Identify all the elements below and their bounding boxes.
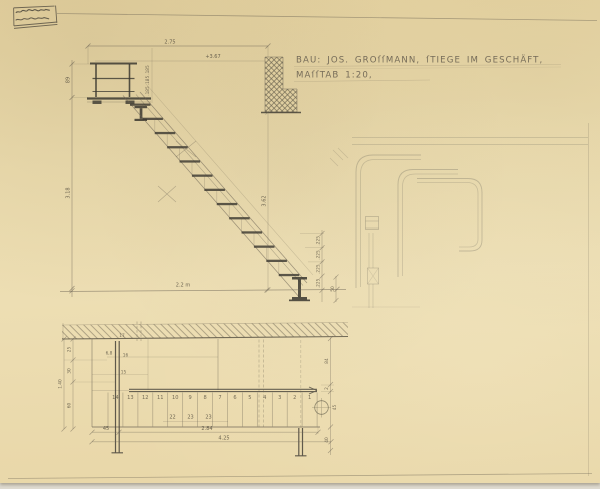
handrail-return-inner-line (417, 183, 478, 248)
dim-right: 2 (324, 387, 330, 390)
tread-width: 22 (169, 415, 175, 421)
riser-dim: .225 (316, 236, 322, 246)
dim-bottom-total: 4.25 (218, 436, 229, 442)
plan-tread-width-dims: 22 23 23 (163, 415, 228, 422)
dim-top-label: 2.75 (164, 40, 175, 46)
dim-left-outer: 1.40 (58, 379, 64, 389)
tread-number: 3 (278, 395, 281, 401)
elev-dim-left (70, 60, 92, 297)
border-bottom (8, 474, 592, 479)
plan-landing-dims: 6,8 16 15 (106, 351, 129, 376)
handrail-middle (398, 170, 458, 278)
riser-dim: .225 (316, 264, 322, 274)
dim-bottom-left: 45 (103, 426, 109, 432)
tread-number: 5 (248, 395, 251, 401)
handrail-middle-inner-line (403, 174, 459, 276)
plan-column-circle (312, 398, 331, 418)
tread-number: 11 (157, 395, 163, 401)
dim-right: 45 (332, 405, 338, 411)
elev-wall-section (261, 57, 301, 113)
plan-stringer-edge (129, 387, 317, 394)
dim-right: 84 (324, 358, 330, 364)
column-crosshair (312, 398, 331, 418)
title-line1: BAU: JOS. GROſſMANN, ſTIEGE IM GESCHÄFT, (296, 55, 543, 66)
landing-riser-dim: .185 (145, 65, 151, 75)
wall-corner-hatch (330, 148, 348, 166)
plan-dims-right (321, 336, 334, 455)
handrail-return (417, 179, 482, 252)
landing-dim: 6,8 (106, 351, 113, 357)
tread-number: 10 (172, 395, 178, 401)
riser-dim: .225 (316, 278, 322, 288)
tread-number: 1 (308, 395, 311, 401)
wall-dim-label: 17 (119, 333, 125, 339)
dim-level-label: +3.67 (205, 54, 220, 60)
title-block: BAU: JOS. GROſſMANN, ſTIEGE IM GESCHÄFT,… (294, 55, 561, 82)
dim-bottom-run: 2.84 (201, 426, 212, 432)
elev-landing-riser-dims: .185 .185 .185 (145, 65, 151, 96)
elev-floor-line (60, 287, 346, 294)
landing-riser-dim: .185 (145, 86, 151, 96)
elev-landing-railing (87, 64, 151, 105)
dim-rail-height-label: 89 (66, 77, 72, 83)
post-foot (93, 101, 102, 105)
corner-stamp (13, 6, 57, 29)
handrail-plan-view (330, 138, 588, 309)
scanned-drawing-sheet: BAU: JOS. GROſſMANN, ſTIEGE IM GESCHÄFT,… (0, 0, 600, 489)
landing-dim: 16 (123, 353, 129, 359)
title-guide-line (294, 67, 561, 69)
tread-number: 7 (218, 395, 221, 401)
tread-number: 8 (203, 395, 206, 401)
stair-plan-view: 17 (58, 322, 349, 456)
dim-left: 25 (67, 347, 73, 353)
wall-hatch (265, 57, 297, 112)
dim-right: 40 (324, 437, 330, 443)
tread-number: 13 (127, 395, 133, 401)
tread-number: 12 (142, 395, 148, 401)
riser-dim: .225 (316, 250, 322, 260)
landing-riser-dim: .185 (145, 75, 151, 85)
tread-number: 6 (233, 395, 236, 401)
base-dim: 50 (330, 286, 336, 292)
border-top (57, 14, 597, 21)
stamp-frame (13, 6, 57, 29)
direction-arrow (309, 387, 317, 394)
construction-cross-marks (158, 141, 196, 202)
plan-tread-numbers: 14 13 12 11 10 9 8 7 6 5 4 3 2 1 (112, 395, 311, 401)
post-section (366, 217, 379, 230)
dim-height-right-label: 3.62 (262, 195, 268, 206)
elev-treads (130, 104, 299, 277)
plan-wall (62, 323, 348, 340)
drawing-linework: BAU: JOS. GROſſMANN, ſTIEGE IM GESCHÄFT,… (0, 0, 600, 489)
landing-dim: 15 (121, 370, 127, 376)
elev-dim-top (86, 44, 271, 104)
post-lines (369, 233, 373, 308)
title-line2: MAſſTAB 1:20, (296, 71, 373, 81)
stamp-script-line1 (16, 9, 50, 13)
dim-floor-label: 2.2 m (176, 283, 191, 289)
dim-left: 30 (67, 368, 73, 374)
dim-left: 60 (67, 403, 73, 409)
stamp-script-line2 (16, 17, 50, 20)
tread-width: 23 (187, 415, 193, 421)
tread-number: 2 (293, 395, 296, 401)
tread-width: 23 (205, 415, 211, 421)
dim-total-height-label: 3.18 (66, 187, 72, 198)
tread-number: 9 (188, 395, 191, 401)
